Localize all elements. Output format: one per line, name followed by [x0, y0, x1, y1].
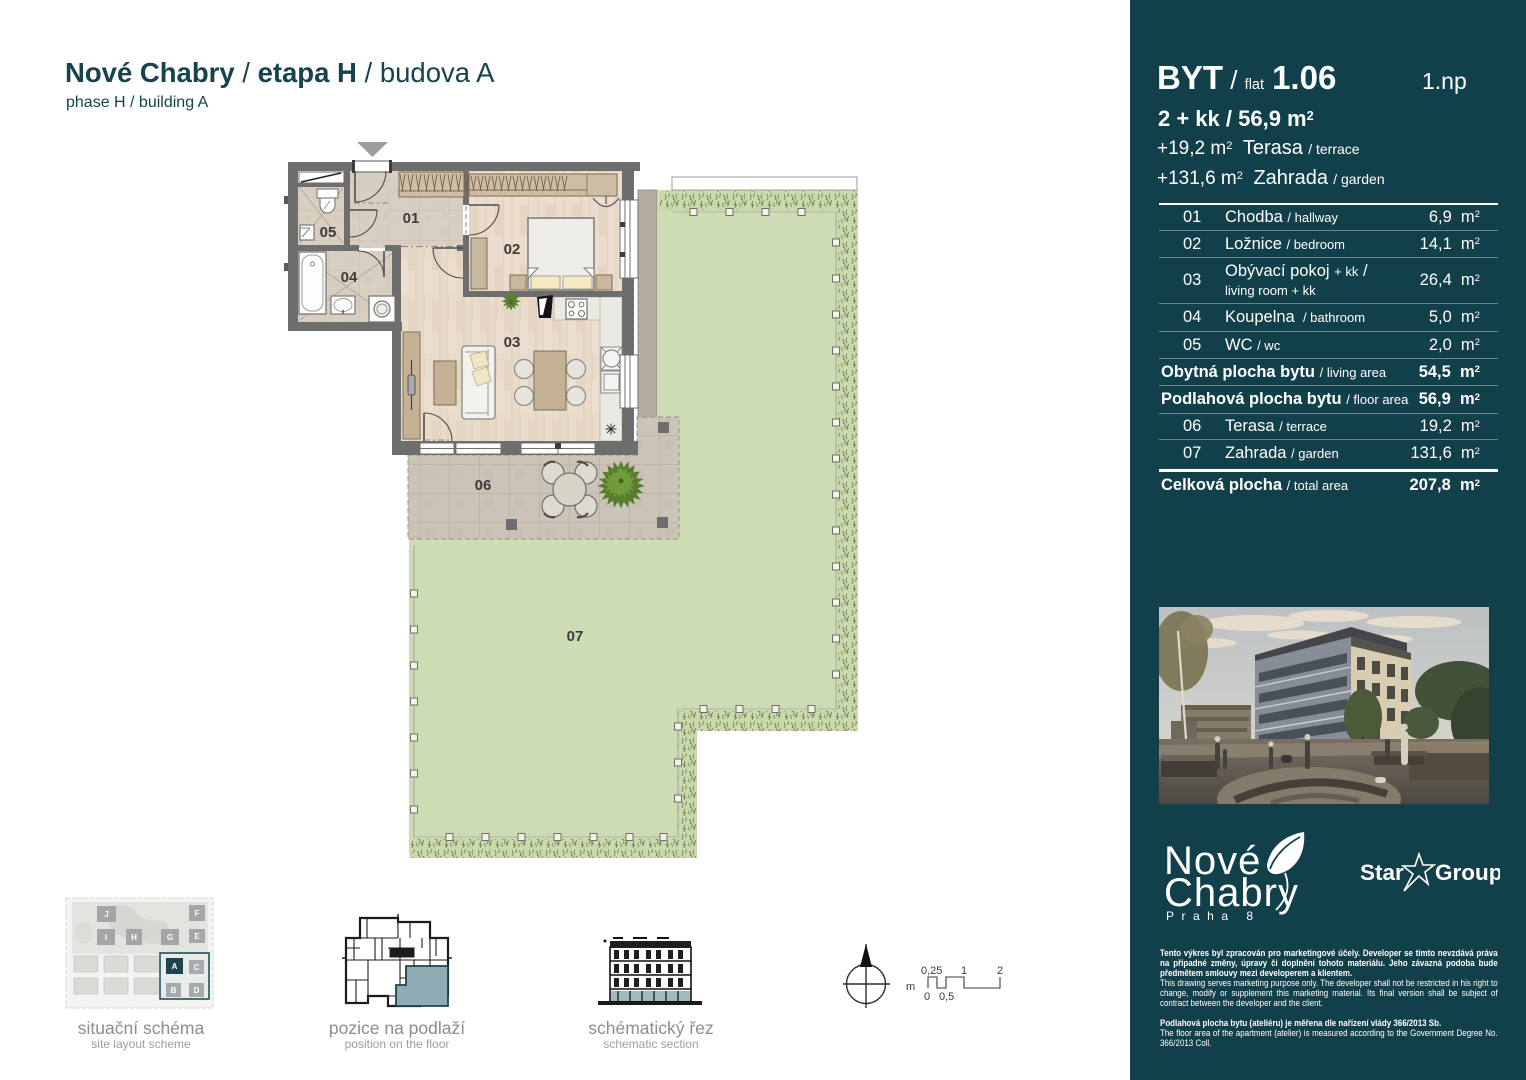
svg-text:04: 04 [341, 269, 358, 286]
svg-text:site layout scheme: site layout scheme [91, 1037, 191, 1051]
svg-text:1: 1 [961, 965, 967, 977]
svg-text:05: 05 [320, 224, 337, 241]
svg-text:2: 2 [997, 965, 1003, 977]
svg-text:I: I [105, 933, 107, 942]
svg-text:D: D [194, 986, 200, 995]
svg-text:06: 06 [475, 477, 492, 494]
svg-text:Star: Star [1360, 860, 1404, 885]
svg-text:C: C [194, 963, 200, 972]
svg-text:Praha 8: Praha 8 [1166, 909, 1261, 923]
svg-text:B: B [171, 986, 177, 995]
svg-text:situační schéma: situační schéma [78, 1018, 205, 1038]
svg-text:pozice na podlaží: pozice na podlaží [329, 1018, 465, 1038]
svg-text:01: 01 [403, 210, 420, 227]
svg-text:schematic section: schematic section [603, 1037, 698, 1051]
svg-text:0,25: 0,25 [921, 965, 942, 977]
svg-text:07: 07 [567, 628, 584, 645]
svg-text:A: A [172, 962, 178, 971]
svg-text:G: G [167, 933, 173, 942]
svg-text:Group: Group [1435, 860, 1500, 885]
svg-text:0,5: 0,5 [939, 991, 954, 1003]
svg-text:J: J [104, 910, 108, 919]
svg-text:0: 0 [924, 991, 930, 1003]
svg-text:E: E [194, 932, 200, 941]
svg-text:position on the floor: position on the floor [345, 1037, 450, 1051]
svg-text:F: F [195, 909, 200, 918]
svg-text:m: m [906, 981, 915, 993]
svg-text:02: 02 [504, 241, 521, 258]
svg-text:schématický řez: schématický řez [588, 1018, 713, 1038]
svg-text:H: H [131, 933, 137, 942]
svg-text:03: 03 [504, 334, 521, 351]
